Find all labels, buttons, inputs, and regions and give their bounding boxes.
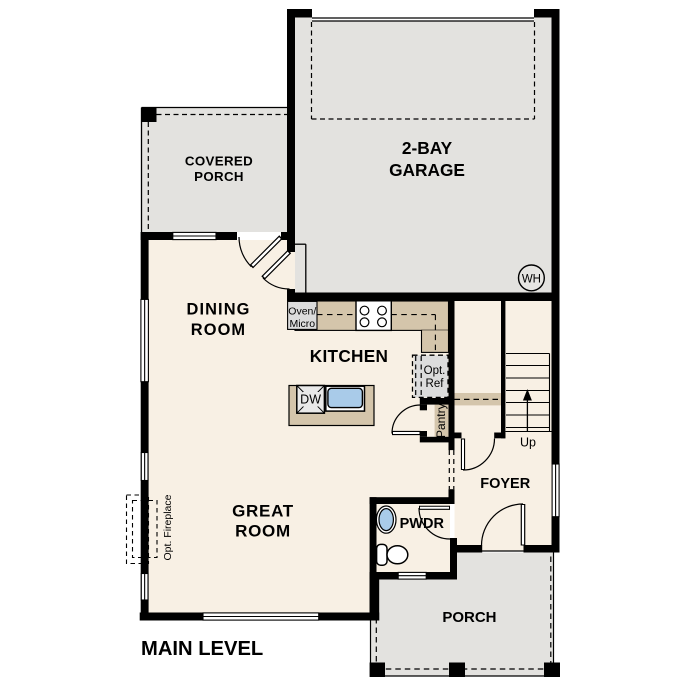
svg-text:MAIN LEVEL: MAIN LEVEL [141,638,263,660]
svg-text:ROOM: ROOM [191,321,246,339]
svg-text:DINING: DINING [187,300,251,318]
svg-text:Pantry: Pantry [434,403,448,438]
svg-text:Ref: Ref [426,378,445,390]
svg-text:WH: WH [522,273,541,285]
svg-text:Up: Up [520,435,536,449]
svg-text:DW: DW [300,392,321,406]
svg-text:ROOM: ROOM [235,521,291,540]
svg-text:GARAGE: GARAGE [389,160,465,180]
svg-text:FOYER: FOYER [480,476,530,492]
svg-text:PWDR: PWDR [400,516,445,532]
svg-text:Micro: Micro [289,318,315,330]
svg-text:PORCH: PORCH [442,609,496,626]
svg-text:2-BAY: 2-BAY [402,138,453,158]
svg-text:Opt. Fireplace: Opt. Fireplace [162,494,174,560]
svg-text:PORCH: PORCH [194,169,244,184]
svg-text:COVERED: COVERED [185,153,253,168]
svg-text:GREAT: GREAT [232,501,294,520]
svg-text:KITCHEN: KITCHEN [310,346,389,366]
svg-text:Opt.: Opt. [424,365,446,377]
svg-text:Oven/: Oven/ [288,305,316,317]
